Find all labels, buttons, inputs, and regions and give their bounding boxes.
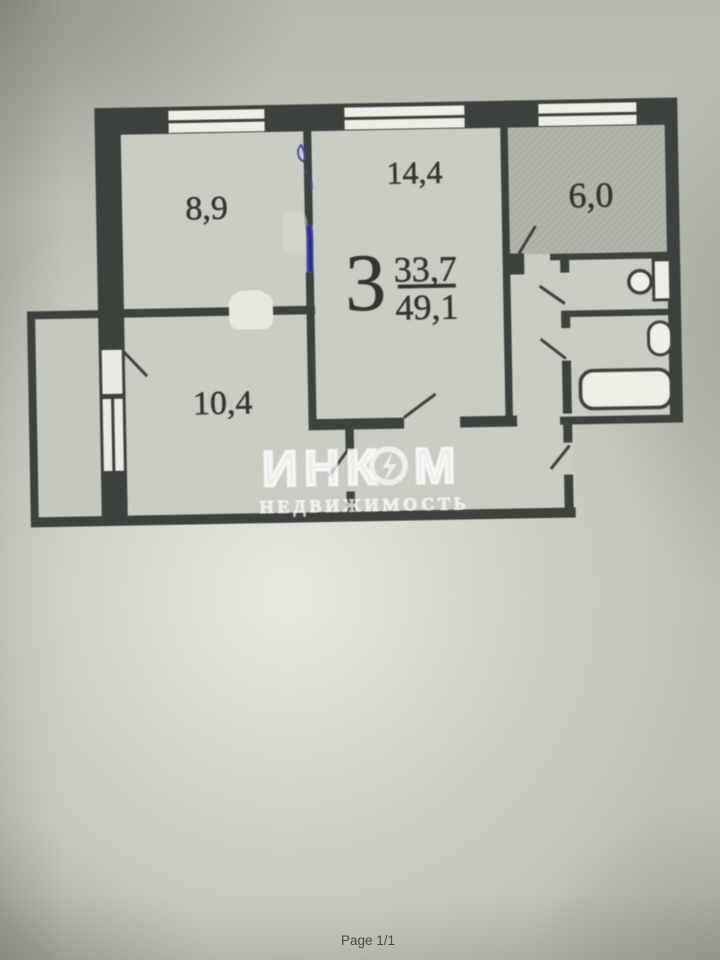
svg-text:33,7: 33,7 bbox=[393, 249, 457, 290]
svg-text:ИНК: ИНК bbox=[261, 439, 383, 497]
svg-text:6,0: 6,0 bbox=[568, 175, 614, 216]
svg-text:49,1: 49,1 bbox=[395, 287, 459, 328]
svg-text:3: 3 bbox=[344, 236, 387, 328]
svg-text:14,4: 14,4 bbox=[386, 154, 443, 191]
svg-text:8,9: 8,9 bbox=[185, 190, 228, 228]
svg-text:М: М bbox=[413, 438, 456, 495]
svg-text:НЕДВИЖИМОСТЬ: НЕДВИЖИМОСТЬ bbox=[259, 493, 469, 517]
svg-text:10,4: 10,4 bbox=[193, 384, 253, 422]
